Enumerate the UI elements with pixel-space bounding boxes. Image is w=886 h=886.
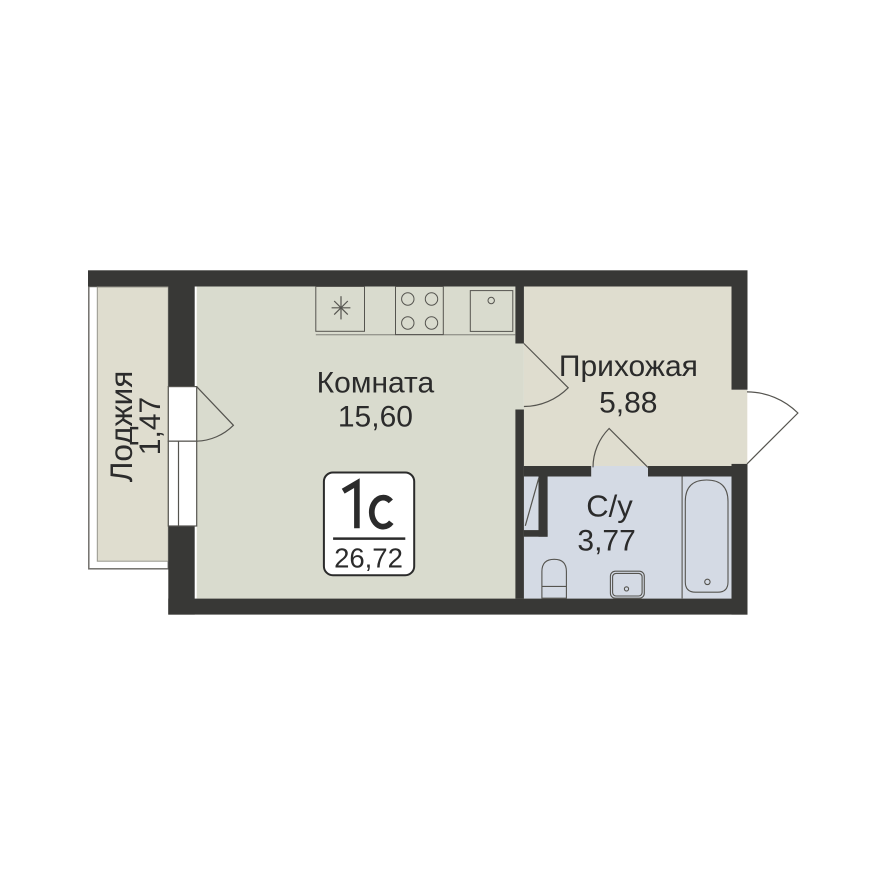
svg-text:1,47: 1,47 bbox=[134, 397, 167, 455]
svg-text:15,60: 15,60 bbox=[338, 401, 413, 434]
svg-text:Прихожая: Прихожая bbox=[559, 350, 698, 383]
svg-text:3,77: 3,77 bbox=[577, 524, 635, 557]
svg-text:С/у: С/у bbox=[586, 489, 633, 524]
svg-text:5,88: 5,88 bbox=[599, 386, 657, 419]
svg-text:26,72: 26,72 bbox=[334, 542, 403, 573]
svg-text:Комната: Комната bbox=[317, 366, 435, 399]
